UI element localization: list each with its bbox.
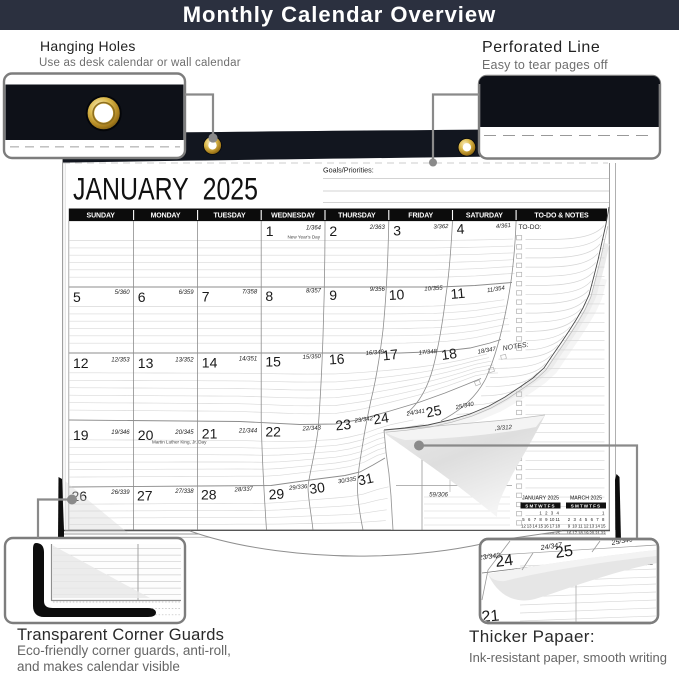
svg-text:14/351: 14/351 xyxy=(239,357,257,363)
svg-text:28: 28 xyxy=(201,487,217,503)
svg-text:TUESDAY: TUESDAY xyxy=(213,213,246,220)
svg-text:15/350: 15/350 xyxy=(302,354,321,361)
svg-text:THURSDAY: THURSDAY xyxy=(338,213,376,220)
svg-text:13/352: 13/352 xyxy=(175,358,194,364)
svg-text:9: 9 xyxy=(329,287,337,303)
svg-text:15: 15 xyxy=(538,524,543,529)
svg-text:28/337: 28/337 xyxy=(233,486,253,493)
svg-text:2/363: 2/363 xyxy=(369,225,386,231)
svg-text:16: 16 xyxy=(544,524,549,529)
svg-text:12: 12 xyxy=(73,355,89,371)
svg-text:5/360: 5/360 xyxy=(115,290,131,296)
svg-text:12: 12 xyxy=(584,524,589,529)
svg-text:JANUARY 2025: JANUARY 2025 xyxy=(73,171,258,207)
svg-text:6/359: 6/359 xyxy=(179,290,195,296)
svg-text:WEDNESDAY: WEDNESDAY xyxy=(271,213,315,220)
svg-text:TO-DO & NOTES: TO-DO & NOTES xyxy=(534,213,589,220)
svg-text:22/343: 22/343 xyxy=(301,425,321,432)
svg-text:7/358: 7/358 xyxy=(242,290,258,296)
svg-text:TO-DO:: TO-DO: xyxy=(519,224,542,231)
svg-text:9/356: 9/356 xyxy=(370,287,386,293)
svg-text:21: 21 xyxy=(202,426,218,442)
svg-text:SATURDAY: SATURDAY xyxy=(466,213,503,220)
svg-text:11: 11 xyxy=(578,524,583,529)
svg-text:15: 15 xyxy=(601,524,606,529)
svg-text:11: 11 xyxy=(555,517,560,522)
svg-text:12/353: 12/353 xyxy=(111,358,130,364)
svg-text:16: 16 xyxy=(328,350,345,367)
svg-text:SMTWTFS: SMTWTFS xyxy=(571,503,601,508)
svg-text:19/346: 19/346 xyxy=(111,430,130,436)
svg-text:10: 10 xyxy=(550,517,555,522)
svg-text:19: 19 xyxy=(73,427,89,443)
svg-text:,3/312: ,3/312 xyxy=(495,424,513,432)
svg-text:6: 6 xyxy=(138,289,146,305)
svg-text:21/344: 21/344 xyxy=(238,429,258,435)
svg-text:29: 29 xyxy=(268,485,285,502)
svg-text:10: 10 xyxy=(572,524,577,529)
svg-text:59/306: 59/306 xyxy=(429,492,448,499)
svg-text:13: 13 xyxy=(138,355,154,371)
svg-text:17: 17 xyxy=(550,524,555,529)
svg-text:27/338: 27/338 xyxy=(174,489,194,495)
svg-text:26/339: 26/339 xyxy=(110,490,130,496)
svg-text:Martin Luther King, Jr. Day: Martin Luther King, Jr. Day xyxy=(152,440,207,445)
svg-text:20/345: 20/345 xyxy=(174,430,194,436)
svg-text:14: 14 xyxy=(533,524,538,529)
svg-text:12: 12 xyxy=(521,524,526,529)
svg-text:MARCH 2025: MARCH 2025 xyxy=(570,496,602,502)
svg-text:14: 14 xyxy=(202,355,218,371)
svg-text:11: 11 xyxy=(450,285,466,302)
svg-text:FRIDAY: FRIDAY xyxy=(408,213,433,220)
svg-text:8/357: 8/357 xyxy=(306,289,322,295)
svg-text:10: 10 xyxy=(388,286,405,303)
svg-text:13: 13 xyxy=(527,524,532,529)
svg-text:23: 23 xyxy=(335,416,352,434)
svg-text:MONDAY: MONDAY xyxy=(151,213,181,220)
svg-text:17: 17 xyxy=(382,346,399,364)
svg-text:JANUARY 2025: JANUARY 2025 xyxy=(522,496,559,502)
svg-text:18: 18 xyxy=(440,345,458,363)
svg-text:1/364: 1/364 xyxy=(306,226,322,232)
svg-text:30: 30 xyxy=(308,479,326,497)
svg-text:22: 22 xyxy=(265,424,281,440)
svg-text:New Year’s Day: New Year’s Day xyxy=(287,235,320,240)
svg-text:24: 24 xyxy=(372,409,390,427)
svg-text:4: 4 xyxy=(456,221,465,237)
svg-text:3/362: 3/362 xyxy=(433,224,449,231)
svg-text:SUNDAY: SUNDAY xyxy=(87,213,116,220)
svg-text:13: 13 xyxy=(589,524,594,529)
svg-text:5: 5 xyxy=(73,289,81,305)
svg-text:27: 27 xyxy=(137,488,153,504)
svg-text:15: 15 xyxy=(265,354,281,370)
svg-text:Goals/Priorities:: Goals/Priorities: xyxy=(323,166,374,175)
svg-text:3: 3 xyxy=(393,223,401,239)
svg-text:18: 18 xyxy=(555,524,560,529)
svg-text:25: 25 xyxy=(425,402,444,421)
svg-text:SMTWTFS: SMTWTFS xyxy=(525,503,555,508)
svg-text:2: 2 xyxy=(329,223,337,239)
svg-text:1: 1 xyxy=(266,223,274,239)
svg-text:8: 8 xyxy=(265,288,273,304)
svg-text:14: 14 xyxy=(595,524,600,529)
svg-text:7: 7 xyxy=(202,289,210,305)
